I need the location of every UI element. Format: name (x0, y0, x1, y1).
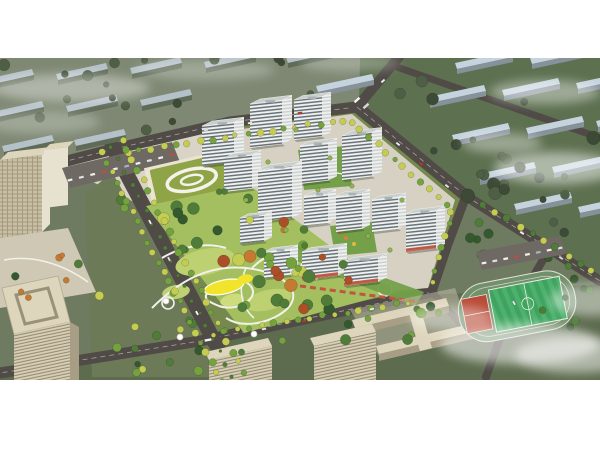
tree (219, 350, 222, 353)
tree (402, 334, 412, 344)
tree (109, 145, 113, 149)
tree (560, 190, 569, 199)
tree (280, 299, 289, 308)
tree (141, 57, 148, 64)
tower-roof-unit (360, 258, 370, 261)
tree (451, 139, 462, 150)
tree (139, 229, 145, 235)
office-tower-b-facade (44, 147, 68, 208)
tree (183, 284, 187, 288)
tree (163, 246, 167, 250)
render-area (0, 46, 600, 384)
tree (300, 225, 308, 233)
tower-side-facade (372, 127, 382, 176)
tree (355, 307, 362, 314)
tree (436, 254, 442, 260)
tree (285, 279, 298, 292)
tree (188, 270, 194, 276)
tree (332, 312, 337, 317)
tree (199, 312, 202, 315)
tree (244, 198, 249, 203)
tree (173, 142, 179, 148)
tree (530, 231, 536, 237)
tree (208, 310, 213, 315)
tree (131, 345, 138, 352)
tree (499, 184, 510, 195)
tree (137, 194, 141, 198)
tree (115, 180, 121, 186)
tree (400, 198, 405, 203)
tree (365, 316, 371, 322)
tree (408, 172, 414, 178)
tree (213, 370, 219, 376)
tower-side-facade (436, 206, 445, 249)
tree (18, 289, 24, 295)
tower-front-facade (300, 143, 328, 184)
tree (406, 301, 411, 306)
tree (162, 269, 168, 275)
tree (430, 147, 437, 154)
tree (307, 316, 312, 321)
tree (238, 349, 244, 355)
tree (539, 307, 546, 314)
tree (211, 333, 216, 338)
tree (578, 261, 585, 268)
tree (123, 198, 130, 205)
tree (295, 317, 301, 323)
tree (135, 361, 141, 367)
tree (151, 200, 157, 206)
tree (181, 307, 187, 313)
tree (465, 233, 475, 243)
tree (183, 141, 190, 148)
tree (203, 324, 207, 328)
tree (260, 322, 265, 327)
tree (427, 93, 439, 105)
cloud (135, 60, 275, 80)
tree (356, 126, 363, 133)
car (298, 112, 303, 114)
aerial-rendering (0, 0, 600, 450)
tree (480, 202, 486, 208)
residential-tower (250, 95, 292, 150)
tree (330, 119, 336, 125)
tree (178, 299, 183, 304)
tree (199, 287, 205, 293)
tower-front-facade (250, 100, 282, 148)
tree (257, 129, 264, 136)
tree (274, 54, 283, 63)
tree (63, 277, 69, 283)
courtyard-play-dot (352, 242, 356, 246)
tree (246, 131, 251, 136)
tree (144, 187, 151, 194)
tree (344, 320, 352, 328)
residential-tower (294, 92, 331, 142)
tree (194, 366, 203, 375)
tree (388, 248, 393, 253)
tree (116, 157, 120, 161)
tree (232, 133, 237, 138)
tower-roof-unit (385, 197, 393, 200)
tree (144, 240, 149, 245)
tree (147, 146, 154, 153)
tree (299, 304, 310, 315)
tree (416, 75, 428, 87)
tree (176, 274, 180, 278)
tower-front-facade (224, 155, 252, 192)
tree (175, 249, 182, 256)
tree (399, 163, 406, 170)
tower-roof-unit (218, 122, 228, 125)
courtyard-play-dot (344, 236, 348, 240)
tower-roof-unit (266, 100, 276, 103)
tree (266, 160, 271, 165)
tree (376, 140, 383, 147)
tree (189, 299, 193, 303)
tree (432, 269, 437, 274)
tree (271, 266, 281, 276)
tower-side-facade (282, 95, 292, 144)
tree (182, 259, 189, 266)
tree (340, 118, 347, 125)
tower-roof-unit (318, 248, 329, 251)
car (248, 122, 253, 125)
tower-roof-unit (316, 193, 323, 196)
tree (213, 226, 223, 236)
tree (198, 341, 203, 346)
tree (417, 179, 424, 186)
tree (365, 134, 372, 141)
tree (366, 234, 371, 239)
tree (119, 190, 125, 196)
tree (301, 243, 307, 249)
tree (295, 265, 302, 272)
tree (503, 214, 511, 222)
tree (161, 143, 168, 150)
tree (169, 118, 176, 125)
tree (305, 121, 311, 127)
tree (11, 272, 19, 280)
tree (121, 101, 130, 110)
tree (133, 369, 141, 377)
tree (230, 349, 238, 357)
tree (222, 338, 230, 346)
tree (135, 218, 141, 224)
tree (238, 303, 247, 312)
tree (517, 224, 524, 231)
tree (222, 135, 228, 141)
tree (270, 128, 277, 135)
tree (99, 149, 106, 156)
tree (303, 270, 316, 283)
tree (220, 328, 226, 334)
tree (149, 249, 155, 255)
tree (25, 295, 31, 301)
tree (587, 131, 600, 144)
tree (321, 295, 332, 306)
tree (203, 299, 210, 306)
tree (216, 320, 221, 325)
tree (571, 317, 579, 325)
tree (491, 209, 498, 216)
tower-front-facade (336, 193, 362, 232)
residential-tower (336, 189, 370, 234)
tree (319, 312, 325, 318)
tower-roof-unit (238, 155, 246, 158)
tree (340, 334, 351, 345)
tree (141, 125, 151, 135)
tree (551, 243, 558, 250)
tree (475, 218, 483, 226)
tree (194, 278, 200, 284)
tree (165, 278, 172, 285)
tree (319, 254, 326, 261)
tree (281, 126, 287, 132)
tree (0, 59, 10, 71)
tree (198, 137, 205, 144)
tree (560, 228, 569, 237)
tree (187, 320, 192, 325)
cloud (490, 80, 600, 104)
tree (235, 327, 240, 332)
tree (173, 99, 182, 108)
tree (588, 268, 594, 274)
tree (339, 260, 348, 269)
tree (166, 358, 174, 366)
tree (395, 88, 406, 99)
tower-front-facade (304, 193, 328, 226)
tree (230, 375, 234, 379)
tree (121, 204, 129, 212)
tree (284, 228, 289, 233)
tree (447, 209, 454, 216)
tree (220, 379, 226, 385)
tree (294, 128, 299, 133)
tree (191, 237, 203, 249)
tree (152, 331, 161, 340)
tree (253, 275, 266, 288)
tree (379, 304, 385, 310)
park-canopy (177, 334, 183, 340)
tree (133, 167, 140, 174)
tree (540, 237, 547, 244)
tree (345, 311, 350, 316)
rendering-canvas (0, 0, 600, 450)
tree (145, 208, 149, 212)
tree (566, 253, 572, 259)
tree (570, 275, 578, 283)
tower-side-facade (378, 253, 387, 282)
tree (438, 244, 445, 251)
tree (279, 337, 286, 344)
tree (565, 263, 572, 270)
tree (209, 359, 217, 367)
tree (128, 156, 135, 163)
park-canopy (251, 331, 257, 337)
tree (192, 330, 199, 337)
tree (436, 194, 441, 199)
tree (344, 276, 352, 284)
tree (95, 291, 104, 300)
tree (350, 184, 355, 189)
tree (110, 169, 115, 174)
tower-roof-unit (308, 97, 316, 100)
tree (393, 157, 398, 162)
residential-tower (342, 127, 382, 182)
tree (166, 228, 174, 236)
tree (60, 253, 65, 258)
tree (328, 156, 333, 161)
tower-side-facade (362, 189, 370, 229)
tree (246, 326, 251, 331)
office-tower-a-facade (0, 155, 42, 238)
tree (444, 202, 450, 208)
tree (113, 343, 122, 352)
tower-roof-unit (252, 215, 259, 218)
tower-front-facade (372, 197, 398, 232)
tree (122, 146, 129, 153)
tree (270, 319, 277, 326)
tree (221, 188, 227, 194)
tree (316, 188, 321, 193)
tree (447, 221, 452, 226)
tree (202, 348, 210, 356)
tree (187, 203, 199, 215)
tower-side-facade (292, 161, 302, 218)
tree (109, 58, 119, 68)
tree (236, 359, 241, 364)
tree (241, 370, 247, 376)
tree (431, 280, 436, 285)
tree (246, 216, 254, 224)
tree (256, 248, 266, 258)
tree (156, 260, 161, 265)
tree (177, 326, 184, 333)
tree (120, 137, 126, 143)
tree (131, 183, 136, 188)
tree (136, 147, 141, 152)
tree (131, 323, 138, 330)
tower-roof-unit (420, 210, 429, 213)
tree (349, 120, 355, 126)
tree (131, 209, 137, 215)
tree (171, 239, 176, 244)
tree (549, 218, 558, 227)
office-tower-c-side (70, 322, 79, 380)
tree (461, 189, 475, 203)
tree (279, 217, 289, 227)
tree (426, 186, 432, 192)
tree (141, 177, 147, 183)
tower-roof-unit (349, 193, 357, 196)
tree (74, 260, 82, 268)
tree (122, 170, 126, 174)
tree (158, 235, 162, 239)
tree (244, 250, 256, 262)
tower-roof-unit (314, 143, 322, 146)
tree (233, 253, 246, 266)
park-canopy (163, 298, 169, 304)
tree (318, 122, 324, 128)
tower-side-facade (322, 92, 331, 137)
tower-side-facade (328, 189, 336, 223)
tree (218, 255, 230, 267)
tree (540, 196, 547, 203)
cloud (410, 306, 494, 330)
tree (284, 319, 289, 324)
tree (210, 137, 217, 144)
residential-tower (300, 138, 337, 186)
tree (223, 362, 228, 367)
tree (155, 210, 161, 216)
tree (161, 218, 168, 225)
tower-front-facade (294, 97, 322, 140)
tower-roof-unit (274, 166, 284, 169)
tree (484, 229, 494, 239)
cloud (300, 55, 400, 71)
tree (171, 288, 178, 295)
tree (173, 208, 183, 218)
tree (103, 160, 109, 166)
tower-roof-unit (277, 249, 285, 252)
tree (442, 233, 449, 240)
tree (476, 170, 484, 178)
tree (382, 149, 389, 156)
cloud (462, 133, 542, 153)
tower-side-facade (264, 211, 272, 241)
tree (393, 300, 399, 306)
